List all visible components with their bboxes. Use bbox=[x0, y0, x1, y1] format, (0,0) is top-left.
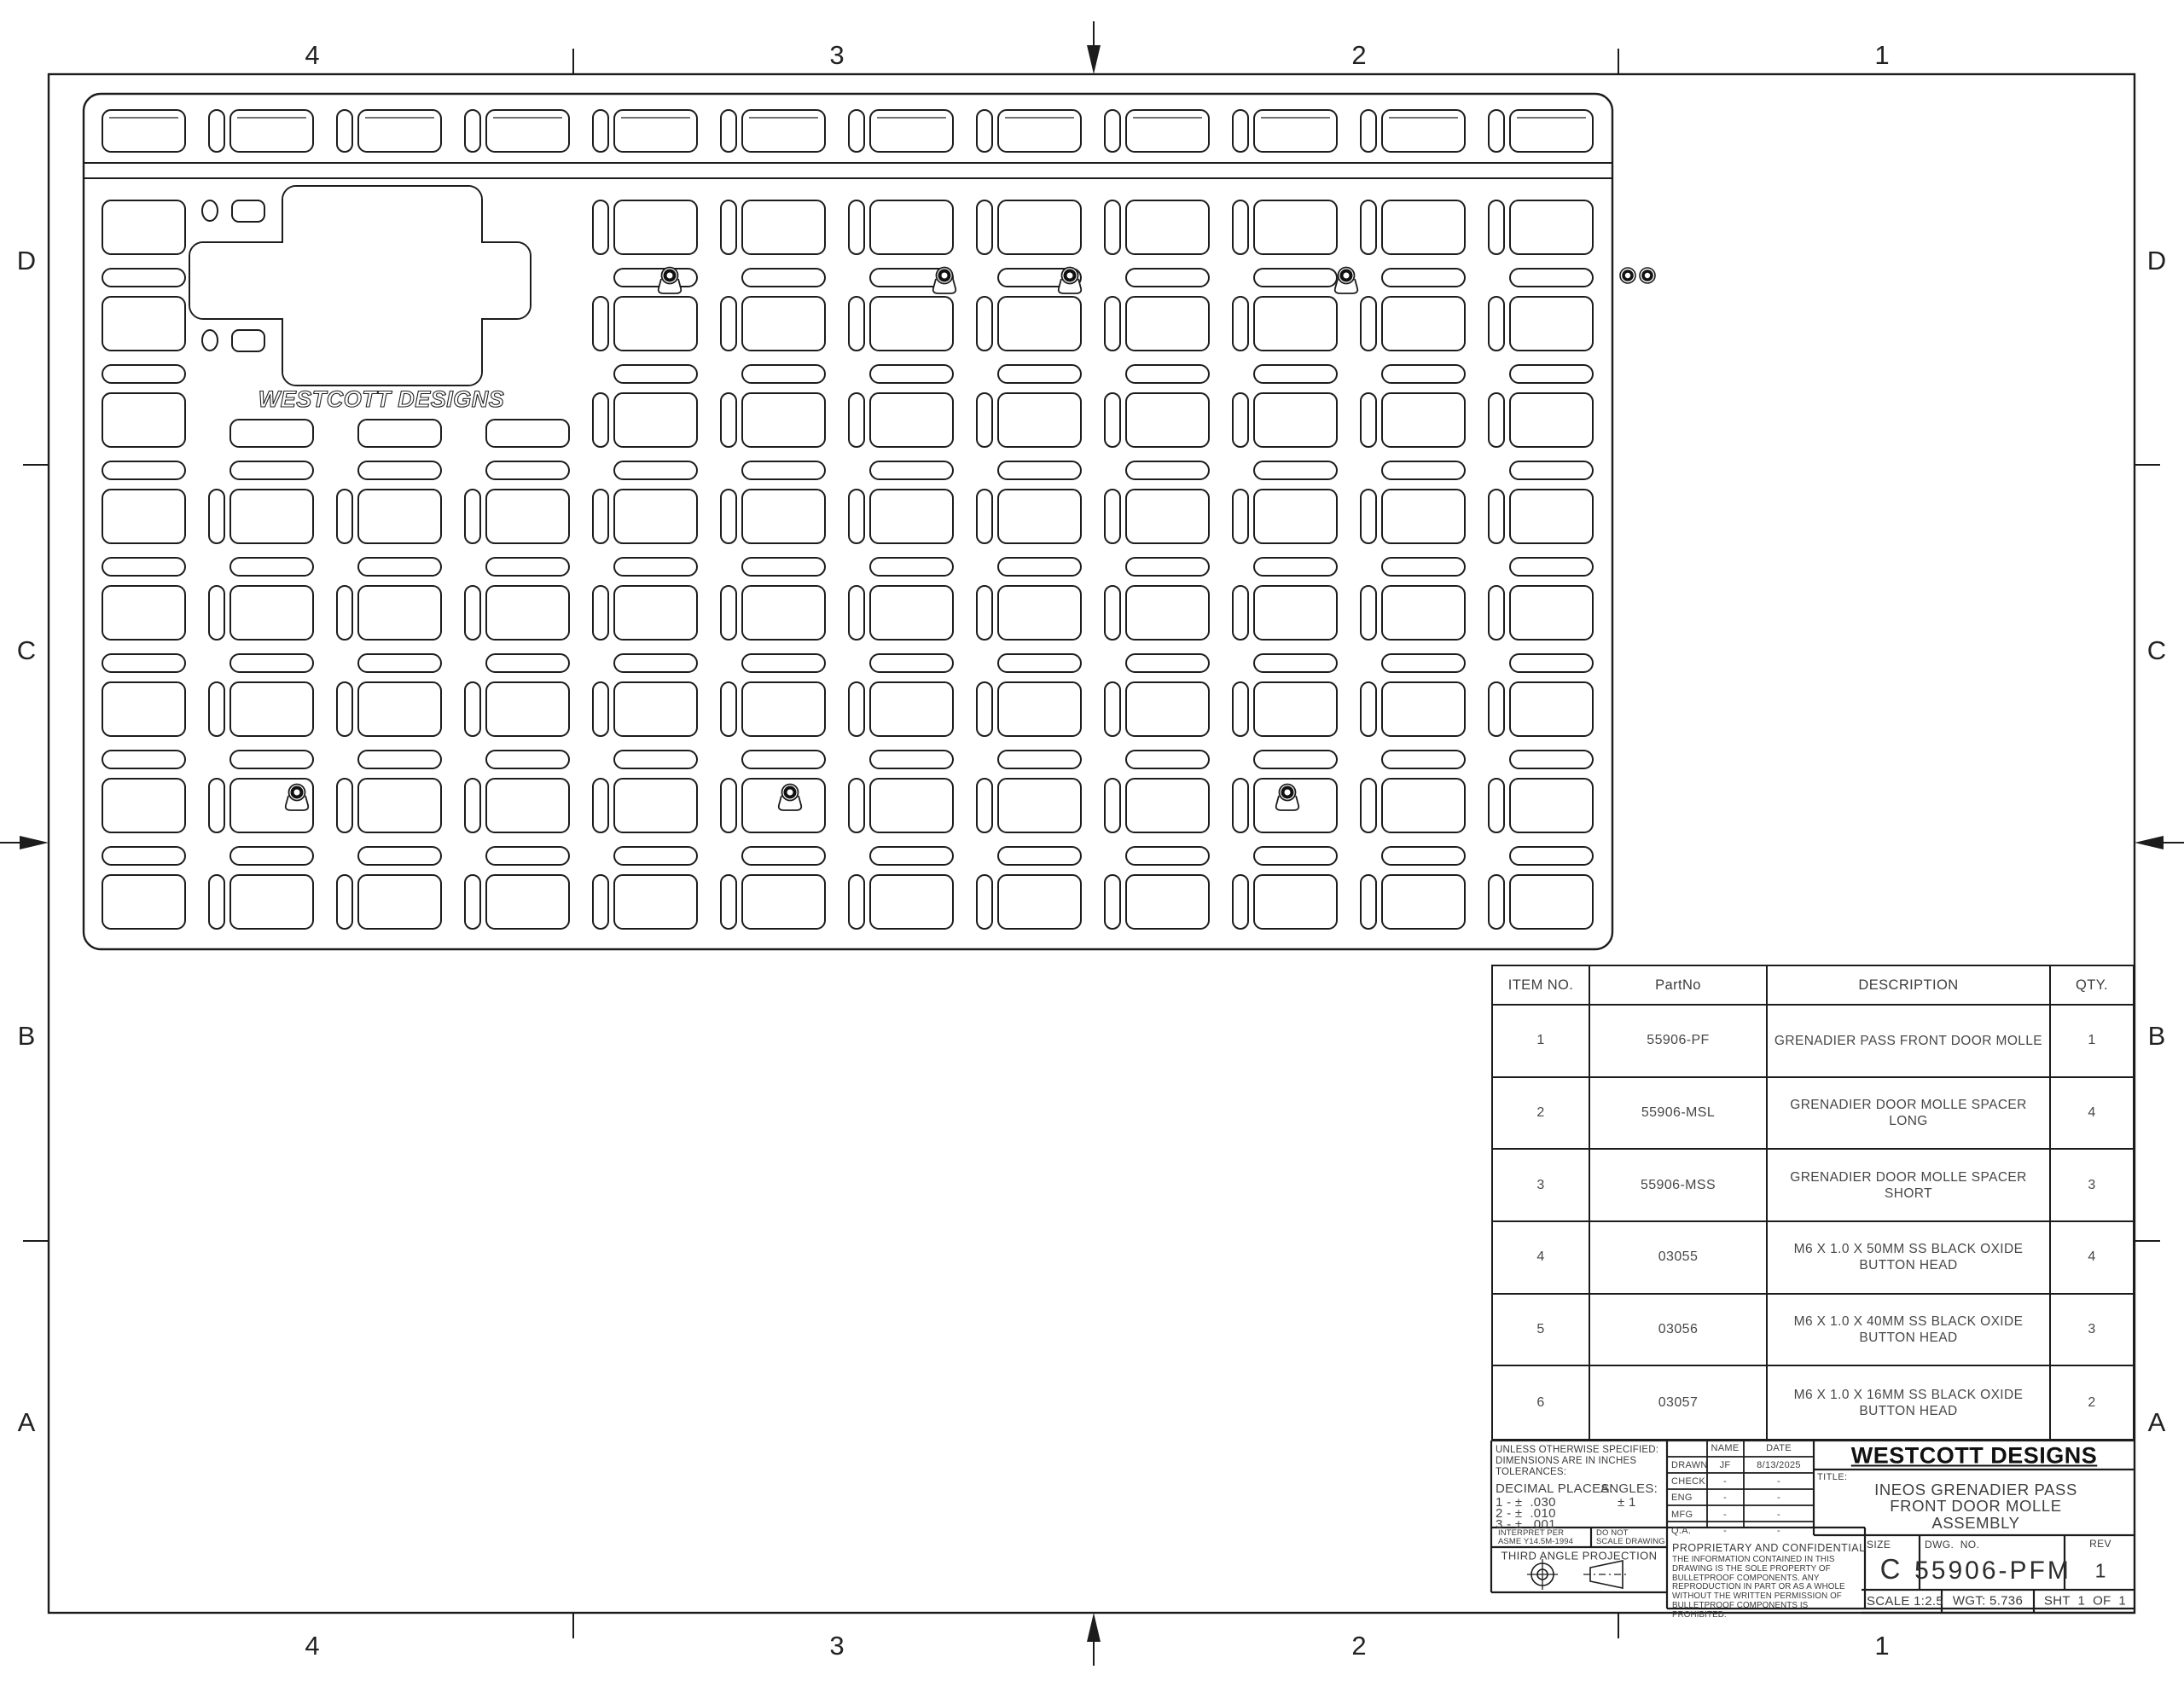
interpret-per-line2: ASME Y14.5M-1994 bbox=[1498, 1538, 1573, 1547]
bom-description: GRENADIER DOOR MOLLE SPACER LONG bbox=[1768, 1078, 2051, 1151]
approvals-row-date: - bbox=[1777, 1510, 1780, 1520]
proprietary-title: PROPRIETARY AND CONFIDENTIAL bbox=[1672, 1542, 1866, 1554]
approvals-row-label: ENG bbox=[1671, 1493, 1693, 1503]
drawing-title-line3: ASSEMBLY bbox=[1931, 1514, 2019, 1533]
tolerance-note-line1: UNLESS OTHERWISE SPECIFIED: bbox=[1496, 1445, 1658, 1455]
weight-value: WGT: 5.736 bbox=[1953, 1594, 2023, 1609]
angles-label: ANGLES: bbox=[1600, 1481, 1658, 1496]
dwg-no-label: DWG. NO. bbox=[1925, 1539, 1979, 1551]
dwg-no-value: 55906-PFM bbox=[1914, 1557, 2071, 1586]
approvals-row-label: Q.A. bbox=[1671, 1526, 1691, 1536]
drawing-sheet: { "colors": {"line": "#1c1c1c", "text": … bbox=[0, 0, 2184, 1687]
bom-header-3: QTY. bbox=[2051, 966, 2133, 1006]
bom-item-no: 1 bbox=[1493, 1006, 1590, 1078]
bom-qty: 4 bbox=[2051, 1222, 2133, 1295]
approvals-header-date: DATE bbox=[1766, 1443, 1792, 1453]
company-name: WESTCOTT DESIGNS bbox=[1851, 1443, 2098, 1470]
tolerance-note-line3: TOLERANCES: bbox=[1496, 1467, 1566, 1477]
tolerance-note-line2: DIMENSIONS ARE IN INCHES bbox=[1496, 1456, 1636, 1466]
approvals-row-name: - bbox=[1723, 1510, 1727, 1520]
bom-description: M6 X 1.0 X 50MM SS BLACK OXIDE BUTTON HE… bbox=[1768, 1222, 2051, 1295]
bom-item-no: 5 bbox=[1493, 1295, 1590, 1367]
size-label: SIZE bbox=[1867, 1539, 1891, 1551]
approvals-row-label: MFG bbox=[1671, 1510, 1693, 1520]
approvals-header-name: NAME bbox=[1711, 1443, 1740, 1453]
proprietary-body: THE INFORMATION CONTAINED IN THIS DRAWIN… bbox=[1672, 1556, 1858, 1620]
bom-qty: 2 bbox=[2051, 1366, 2133, 1439]
bom-description: M6 X 1.0 X 40MM SS BLACK OXIDE BUTTON HE… bbox=[1768, 1295, 2051, 1367]
third-angle-projection-label: THIRD ANGLE PROJECTION bbox=[1501, 1550, 1658, 1562]
bom-description: GRENADIER DOOR MOLLE SPACER SHORT bbox=[1768, 1150, 2051, 1222]
approvals-row-name: - bbox=[1723, 1493, 1727, 1503]
rev-label: REV bbox=[2089, 1538, 2111, 1550]
do-not-scale-line2: SCALE DRAWING bbox=[1596, 1538, 1665, 1547]
bom-part-no: 03056 bbox=[1590, 1295, 1768, 1367]
approvals-row-name: - bbox=[1723, 1476, 1727, 1487]
approvals-row-date: - bbox=[1777, 1476, 1780, 1487]
approvals-row-date: - bbox=[1777, 1493, 1780, 1503]
title-label: TITLE: bbox=[1817, 1472, 1847, 1482]
bom-item-no: 6 bbox=[1493, 1366, 1590, 1439]
bom-qty: 4 bbox=[2051, 1078, 2133, 1151]
bom-qty: 3 bbox=[2051, 1295, 2133, 1367]
bom-header-2: DESCRIPTION bbox=[1768, 966, 2051, 1006]
bom-header-0: ITEM NO. bbox=[1493, 966, 1590, 1006]
decimal-places-label: DECIMAL PLACES: bbox=[1496, 1481, 1613, 1496]
bom-item-no: 4 bbox=[1493, 1222, 1590, 1295]
approvals-row-label: DRAWN bbox=[1671, 1460, 1708, 1470]
bom-description: M6 X 1.0 X 16MM SS BLACK OXIDE BUTTON HE… bbox=[1768, 1366, 2051, 1439]
bom-part-no: 55906-MSL bbox=[1590, 1078, 1768, 1151]
bom-part-no: 03055 bbox=[1590, 1222, 1768, 1295]
approvals-row-name: JF bbox=[1720, 1460, 1731, 1470]
bom-header-1: PartNo bbox=[1590, 966, 1768, 1006]
sheet-number: SHT 1 OF 1 bbox=[2044, 1594, 2126, 1609]
bom-part-no: 55906-PF bbox=[1590, 1006, 1768, 1078]
bom-qty: 3 bbox=[2051, 1150, 2133, 1222]
bom-table: ITEM NO.PartNoDESCRIPTIONQTY.155906-PFGR… bbox=[1491, 965, 2135, 1441]
size-value: C bbox=[1880, 1553, 1902, 1586]
bom-part-no: 03057 bbox=[1590, 1366, 1768, 1439]
bom-item-no: 2 bbox=[1493, 1078, 1590, 1151]
bom-part-no: 55906-MSS bbox=[1590, 1150, 1768, 1222]
bom-item-no: 3 bbox=[1493, 1150, 1590, 1222]
drawing-title-line2: FRONT DOOR MOLLE bbox=[1890, 1497, 2061, 1516]
angles-value: ± 1 bbox=[1618, 1495, 1636, 1510]
scale-value: SCALE 1:2.5 bbox=[1867, 1594, 1943, 1609]
bom-qty: 1 bbox=[2051, 1006, 2133, 1078]
approvals-row-date: 8/13/2025 bbox=[1757, 1460, 1801, 1470]
bom-description: GRENADIER PASS FRONT DOOR MOLLE bbox=[1768, 1006, 2051, 1078]
approvals-row-date: - bbox=[1777, 1526, 1780, 1536]
approvals-row-label: CHECK bbox=[1671, 1476, 1705, 1487]
approvals-row-name: - bbox=[1723, 1526, 1727, 1536]
rev-value: 1 bbox=[2095, 1560, 2106, 1583]
